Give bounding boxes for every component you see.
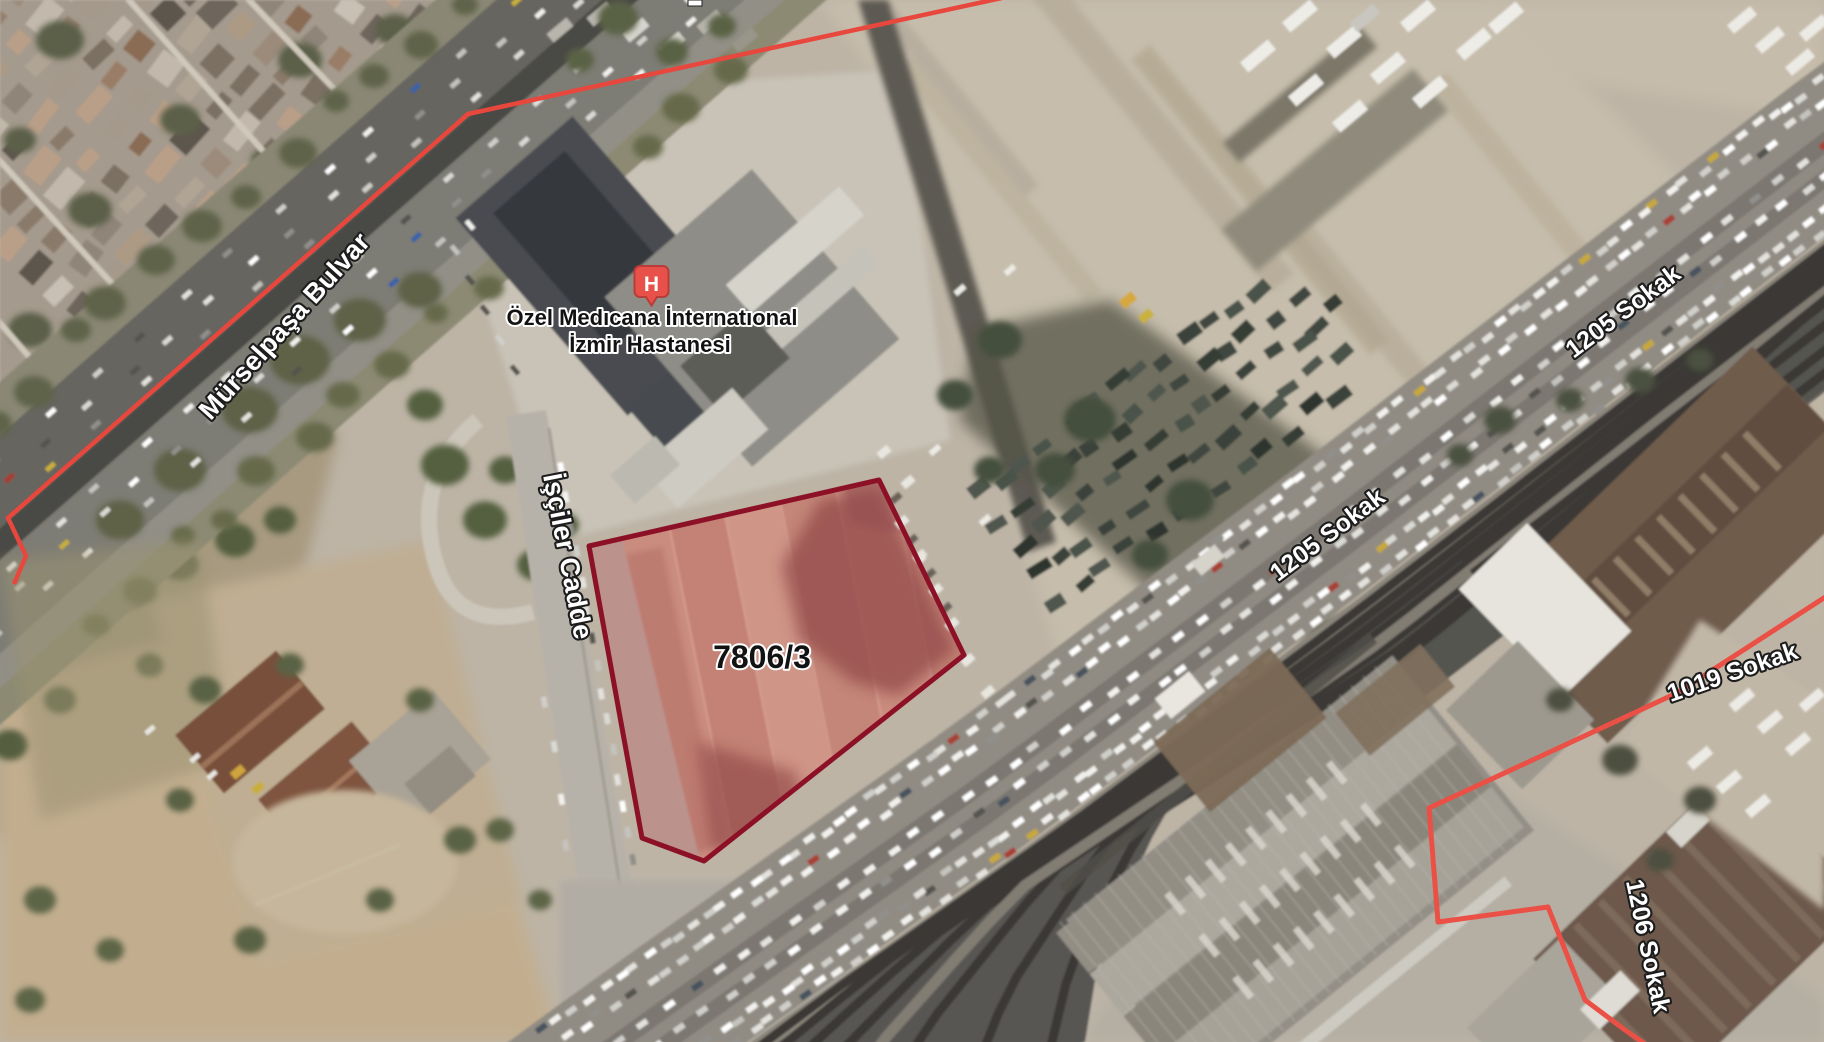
svg-text:Özel Medıcana İnternatıonal: Özel Medıcana İnternatıonal [507, 305, 798, 330]
svg-text:7806/3: 7806/3 [713, 639, 811, 675]
svg-text:İzmir Hastanesi: İzmir Hastanesi [569, 332, 730, 357]
svg-text:H: H [644, 273, 659, 296]
